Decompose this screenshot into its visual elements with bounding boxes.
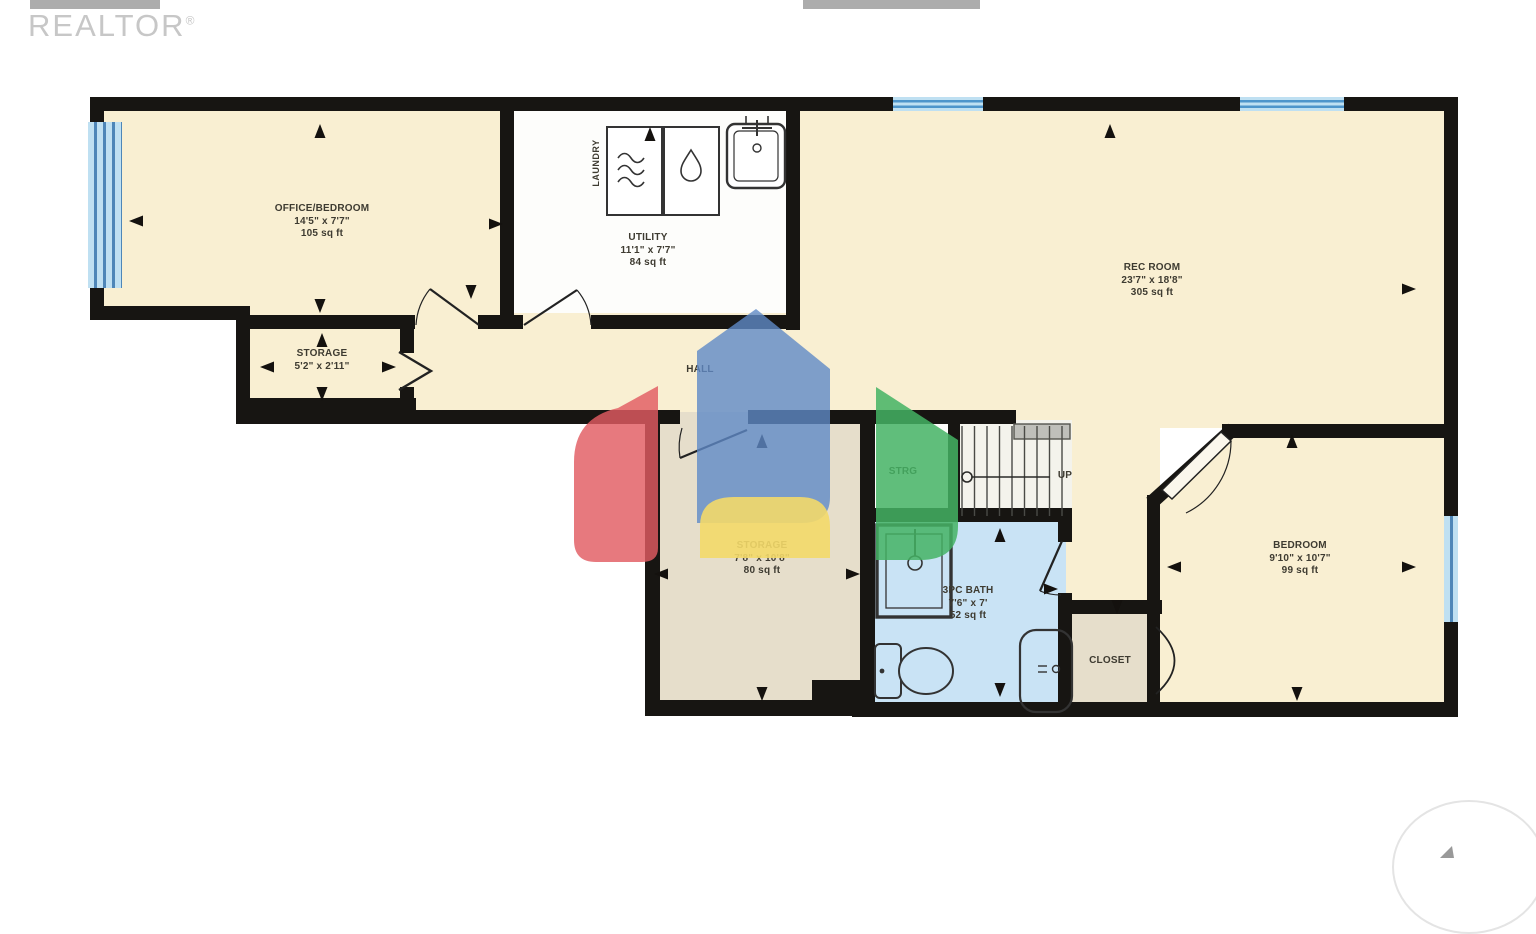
realtor-logo-text: REALTOR: [28, 8, 186, 43]
watermark-yellow-shape: [700, 497, 830, 558]
realtor-logo: REALTOR®: [28, 8, 196, 44]
watermark-green-shape: [876, 387, 958, 560]
top-bar-center: [803, 0, 980, 9]
watermark-logo: [0, 0, 1536, 864]
watermark-red-shape: [574, 386, 658, 562]
registered-mark: ®: [186, 14, 197, 28]
watermark-blue-shape: [697, 309, 830, 523]
